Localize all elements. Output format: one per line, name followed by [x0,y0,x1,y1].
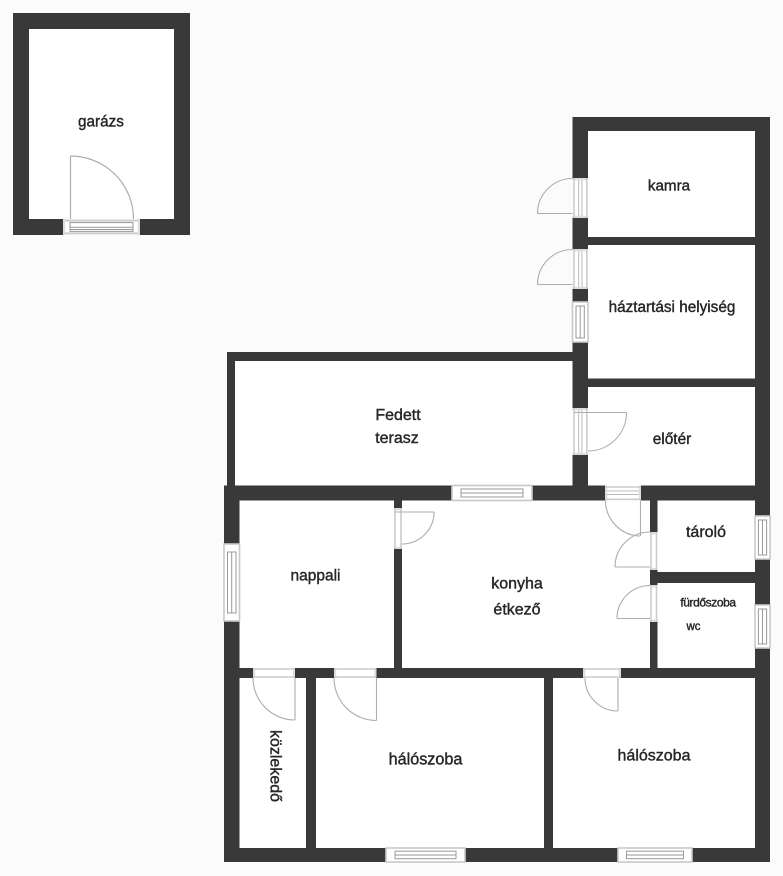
svg-text:hálószoba: hálószoba [618,748,691,765]
svg-text:nappali: nappali [291,568,341,585]
svg-text:fürdőszoba: fürdőszoba [680,596,736,610]
svg-text:előtér: előtér [653,431,692,448]
svg-text:konyha: konyha [491,576,543,593]
svg-text:háztartási helyiség: háztartási helyiség [609,299,736,316]
svg-text:garázs: garázs [78,114,124,131]
svg-text:tároló: tároló [686,524,726,541]
svg-text:Fedett: Fedett [375,407,421,424]
svg-text:terasz: terasz [375,430,419,447]
svg-text:wc: wc [685,621,700,633]
svg-text:közlekedő: közlekedő [267,730,284,802]
svg-text:hálószoba: hálószoba [389,751,463,769]
svg-text:kamra: kamra [648,178,691,195]
svg-text:étkező: étkező [493,602,540,619]
